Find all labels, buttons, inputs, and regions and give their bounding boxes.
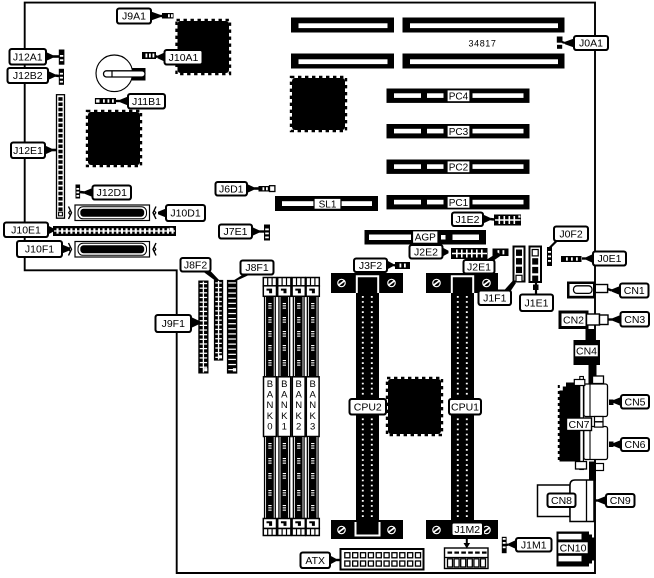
svg-text:PC1: PC1 (449, 198, 469, 209)
svg-text:K: K (281, 411, 288, 422)
svg-text:34817: 34817 (468, 39, 496, 49)
svg-text:J8F2: J8F2 (184, 259, 208, 271)
svg-text:B: B (281, 379, 287, 390)
svg-text:CN8: CN8 (551, 495, 572, 507)
svg-text:CN10: CN10 (560, 542, 587, 554)
svg-text:PC2: PC2 (449, 162, 469, 173)
svg-text:AGP: AGP (415, 233, 436, 244)
svg-text:K: K (310, 411, 317, 422)
svg-text:N: N (309, 400, 316, 411)
svg-text:J12D1: J12D1 (97, 187, 128, 199)
svg-text:J1M2: J1M2 (454, 524, 480, 536)
svg-text:J0E1: J0E1 (598, 253, 622, 265)
svg-text:J1M1: J1M1 (521, 539, 547, 551)
svg-text:A: A (267, 390, 274, 401)
svg-text:CPU1: CPU1 (451, 401, 479, 413)
svg-text:J10E1: J10E1 (11, 224, 41, 236)
svg-text:A: A (281, 390, 288, 401)
svg-text:CPU2: CPU2 (354, 401, 382, 413)
svg-text:J2E1: J2E1 (467, 261, 491, 273)
svg-text:B: B (296, 379, 302, 390)
svg-text:J12B2: J12B2 (13, 70, 43, 82)
svg-text:B: B (310, 379, 316, 390)
svg-text:J9F1: J9F1 (162, 318, 186, 330)
svg-text:J11B1: J11B1 (132, 96, 161, 108)
svg-text:K: K (296, 411, 303, 422)
svg-text:CN2: CN2 (563, 315, 584, 327)
svg-text:A: A (310, 390, 317, 401)
svg-text:CN5: CN5 (624, 396, 645, 408)
svg-text:J10F1: J10F1 (25, 244, 54, 256)
svg-text:A: A (296, 390, 303, 401)
svg-text:N: N (266, 400, 273, 411)
svg-text:PC3: PC3 (449, 127, 469, 138)
svg-text:CN6: CN6 (624, 439, 645, 451)
svg-text:J1E1: J1E1 (525, 297, 549, 309)
svg-text:J2E2: J2E2 (414, 246, 438, 258)
svg-text:J7E1: J7E1 (224, 226, 248, 238)
svg-text:CN3: CN3 (624, 314, 645, 326)
svg-text:J3F2: J3F2 (359, 260, 383, 272)
svg-text:J10A1: J10A1 (169, 52, 199, 64)
svg-text:J6D1: J6D1 (219, 183, 244, 195)
svg-text:2: 2 (296, 421, 301, 432)
svg-text:PC4: PC4 (449, 91, 469, 102)
svg-text:J8F1: J8F1 (245, 262, 269, 274)
svg-text:0: 0 (267, 421, 272, 432)
svg-text:CN4: CN4 (576, 345, 597, 357)
svg-text:CN9: CN9 (610, 495, 631, 507)
svg-text:K: K (267, 411, 274, 422)
svg-text:J0F2: J0F2 (559, 228, 583, 240)
svg-text:J0A1: J0A1 (579, 38, 603, 50)
svg-text:N: N (281, 400, 288, 411)
svg-text:CN1: CN1 (624, 285, 645, 297)
svg-text:ATX: ATX (305, 555, 325, 567)
svg-text:J12E1: J12E1 (13, 145, 43, 157)
svg-text:J1E2: J1E2 (456, 214, 480, 226)
svg-text:N: N (295, 400, 302, 411)
svg-text:J9A1: J9A1 (122, 11, 146, 23)
svg-text:3: 3 (310, 421, 315, 432)
svg-text:CN7: CN7 (568, 419, 589, 431)
svg-text:J12A1: J12A1 (13, 51, 43, 63)
svg-text:J10D1: J10D1 (170, 208, 201, 220)
svg-text:SL1: SL1 (319, 199, 337, 210)
svg-text:J1F1: J1F1 (483, 292, 507, 304)
svg-text:1: 1 (282, 421, 287, 432)
svg-text:B: B (267, 379, 273, 390)
